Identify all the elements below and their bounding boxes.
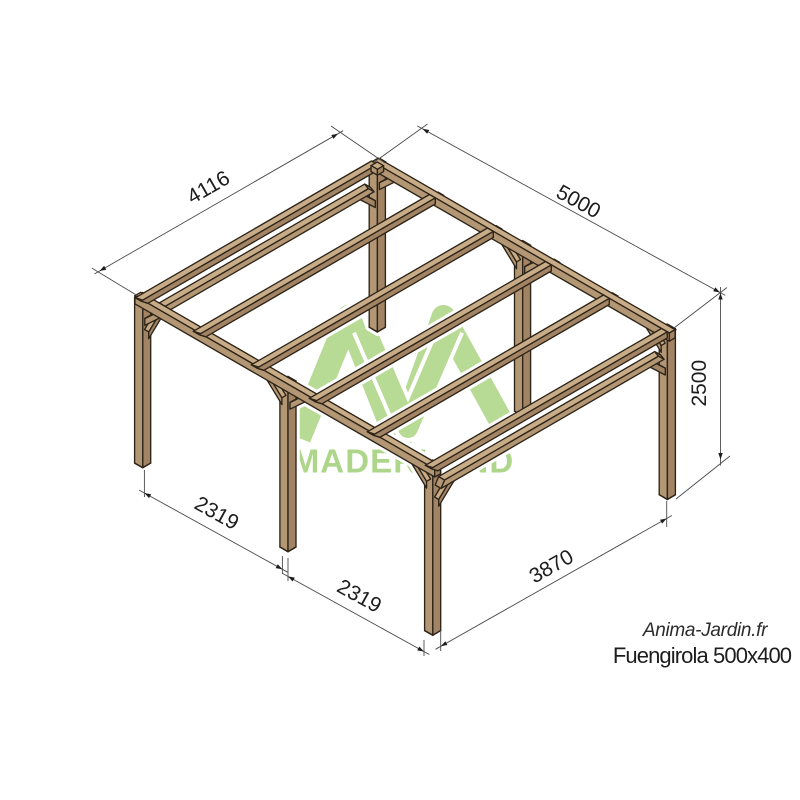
svg-text:Fuengirola 500x400: Fuengirola 500x400 <box>613 643 792 668</box>
svg-text:2500: 2500 <box>688 360 711 407</box>
svg-text:Anima-Jardin.fr: Anima-Jardin.fr <box>642 620 768 641</box>
